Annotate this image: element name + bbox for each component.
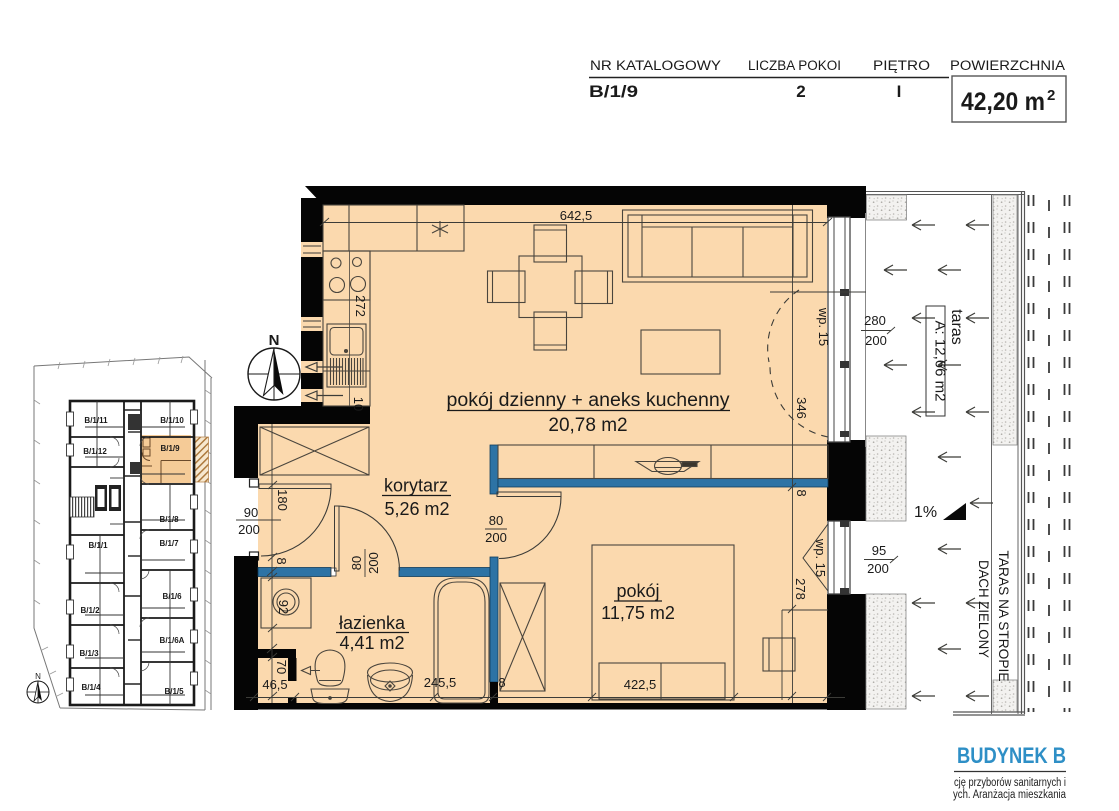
svg-text:I: I [897, 82, 902, 101]
svg-text:200: 200 [867, 561, 889, 576]
svg-text:DACH ZIELONY: DACH ZIELONY [976, 560, 992, 659]
svg-text:pokój: pokój [616, 581, 659, 601]
svg-text:B/1/3: B/1/3 [79, 649, 99, 658]
svg-text:346: 346 [794, 397, 809, 419]
svg-text:B/1/1: B/1/1 [88, 541, 108, 550]
svg-text:B/1/11: B/1/11 [84, 416, 108, 425]
svg-text:cję przyborów sanitarnych i: cję przyborów sanitarnych i [954, 777, 1066, 789]
svg-text:B/1/5: B/1/5 [164, 687, 184, 696]
svg-text:200: 200 [485, 530, 507, 545]
svg-text:B/1/10: B/1/10 [160, 416, 184, 425]
svg-text:272: 272 [353, 295, 368, 317]
svg-text:280: 280 [864, 313, 886, 328]
svg-text:11,75 m2: 11,75 m2 [601, 603, 675, 623]
svg-text:N: N [35, 672, 41, 681]
svg-text:B/1/9: B/1/9 [589, 82, 638, 101]
svg-text:80: 80 [489, 513, 503, 528]
svg-text:642,5: 642,5 [560, 208, 593, 223]
svg-text:B/1/9: B/1/9 [160, 444, 180, 453]
svg-text:10: 10 [351, 397, 366, 411]
svg-text:wp. 15: wp. 15 [813, 538, 828, 577]
svg-text:70: 70 [274, 660, 289, 674]
svg-text:2: 2 [796, 82, 805, 101]
svg-text:wp. 15: wp. 15 [816, 307, 831, 346]
svg-text:92: 92 [276, 600, 291, 614]
svg-text:POWIERZCHNIA: POWIERZCHNIA [950, 58, 1065, 73]
svg-text:42,20 m: 42,20 m [961, 88, 1045, 116]
svg-text:B/1/2: B/1/2 [80, 606, 100, 615]
svg-text:korytarz: korytarz [384, 476, 448, 496]
svg-text:80: 80 [349, 556, 364, 570]
svg-text:B/1/6A: B/1/6A [160, 636, 185, 645]
svg-text:LICZBA POKOI: LICZBA POKOI [748, 58, 841, 73]
svg-text:B/1/7: B/1/7 [159, 539, 179, 548]
svg-text:245,5: 245,5 [424, 675, 457, 690]
svg-text:200: 200 [865, 333, 887, 348]
svg-text:B/1/8: B/1/8 [159, 515, 179, 524]
svg-text:B/1/4: B/1/4 [81, 683, 101, 692]
svg-text:8: 8 [498, 675, 505, 690]
svg-text:20,78 m2: 20,78 m2 [548, 415, 627, 436]
svg-text:TARAS NA STROPIE: TARAS NA STROPIE [996, 551, 1012, 682]
svg-text:łazienka: łazienka [339, 613, 406, 633]
svg-text:ych. Aranżacja mieszkania: ych. Aranżacja mieszkania [953, 789, 1066, 801]
svg-text:422,5: 422,5 [624, 677, 657, 692]
svg-text:2: 2 [1047, 87, 1055, 104]
svg-text:taras: taras [948, 309, 965, 345]
svg-text:180: 180 [275, 489, 290, 511]
svg-text:NR KATALOGOWY: NR KATALOGOWY [590, 58, 721, 73]
svg-text:A: 12,66 m2: A: 12,66 m2 [932, 321, 949, 402]
svg-text:8: 8 [274, 557, 289, 564]
svg-text:8: 8 [794, 489, 809, 496]
svg-text:B/1/6: B/1/6 [162, 592, 182, 601]
svg-text:200: 200 [366, 552, 381, 574]
svg-text:N: N [269, 332, 280, 349]
svg-text:pokój dzienny + aneks kuchenny: pokój dzienny + aneks kuchenny [447, 390, 730, 411]
svg-text:B/1/12: B/1/12 [83, 447, 107, 456]
svg-text:1%: 1% [914, 504, 937, 521]
svg-text:90: 90 [244, 505, 258, 520]
svg-text:PIĘTRO: PIĘTRO [873, 58, 930, 73]
svg-text:4,41 m2: 4,41 m2 [339, 633, 404, 653]
svg-text:278: 278 [793, 578, 808, 600]
svg-text:5,26 m2: 5,26 m2 [384, 499, 449, 519]
svg-text:200: 200 [238, 522, 260, 537]
svg-text:BUDYNEK B: BUDYNEK B [957, 743, 1066, 768]
svg-text:95: 95 [872, 543, 886, 558]
svg-text:46,5: 46,5 [262, 677, 287, 692]
